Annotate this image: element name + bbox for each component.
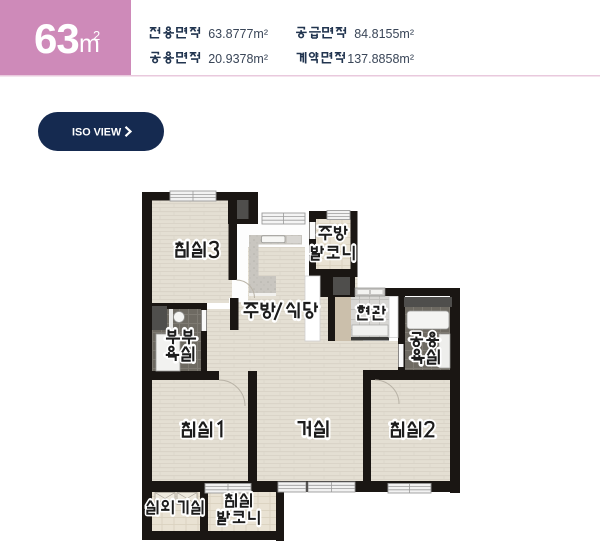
svg-text:84.8155m²: 84.8155m² [354,27,414,41]
svg-text:ISO VIEW: ISO VIEW [72,127,122,139]
svg-text:2: 2 [93,28,100,43]
svg-text:63: 63 [34,15,79,62]
svg-text:20.9378m²: 20.9378m² [208,52,268,66]
svg-text:137.8858m²: 137.8858m² [347,52,414,66]
svg-text:63.8777m²: 63.8777m² [208,27,268,41]
